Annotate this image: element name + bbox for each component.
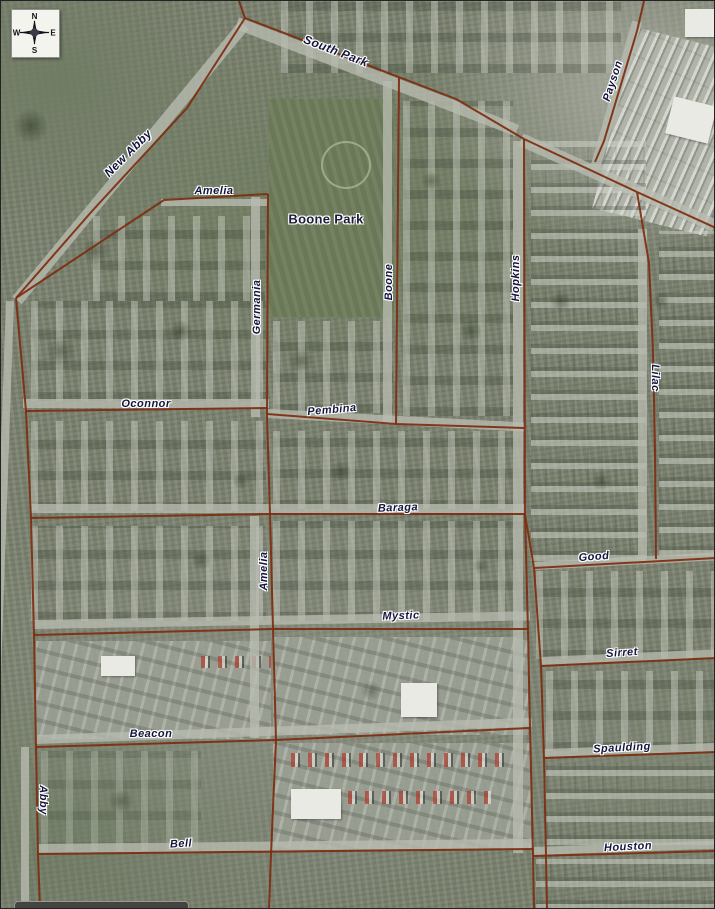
street-label-good: Good	[578, 550, 609, 564]
compass-w: W	[13, 29, 21, 38]
street-label-lilac: Lilac	[649, 364, 661, 392]
street-label-bell: Bell	[170, 837, 193, 850]
street-label-oconnor: Oconnor	[121, 398, 170, 410]
street-label-hopkins: Hopkins	[510, 255, 522, 302]
compass-e: E	[50, 29, 56, 38]
street-label-beacon: Beacon	[130, 728, 173, 740]
street-label-mystic: Mystic	[382, 609, 420, 622]
street-label-sirret: Sirret	[606, 646, 639, 660]
compass-rose: N E S W	[11, 9, 60, 58]
street-label-germania: Germania	[251, 280, 263, 335]
compass-n: N	[32, 12, 38, 21]
scale-bar	[14, 901, 189, 909]
compass-s: S	[32, 46, 38, 55]
compass-star: N E S W	[12, 10, 57, 55]
street-label-amelia-lower: Amelia	[258, 551, 270, 590]
street-label-amelia-upper: Amelia	[194, 185, 233, 197]
tree-canopy	[1, 1, 714, 908]
aerial-map: South Park Payson New Abby Amelia German…	[0, 0, 715, 909]
street-label-abby: Abby	[37, 785, 49, 815]
street-label-houston: Houston	[604, 840, 653, 855]
street-label-baraga: Baraga	[378, 501, 419, 514]
park-label: Boone Park	[288, 212, 363, 227]
street-label-boone: Boone	[383, 264, 395, 301]
